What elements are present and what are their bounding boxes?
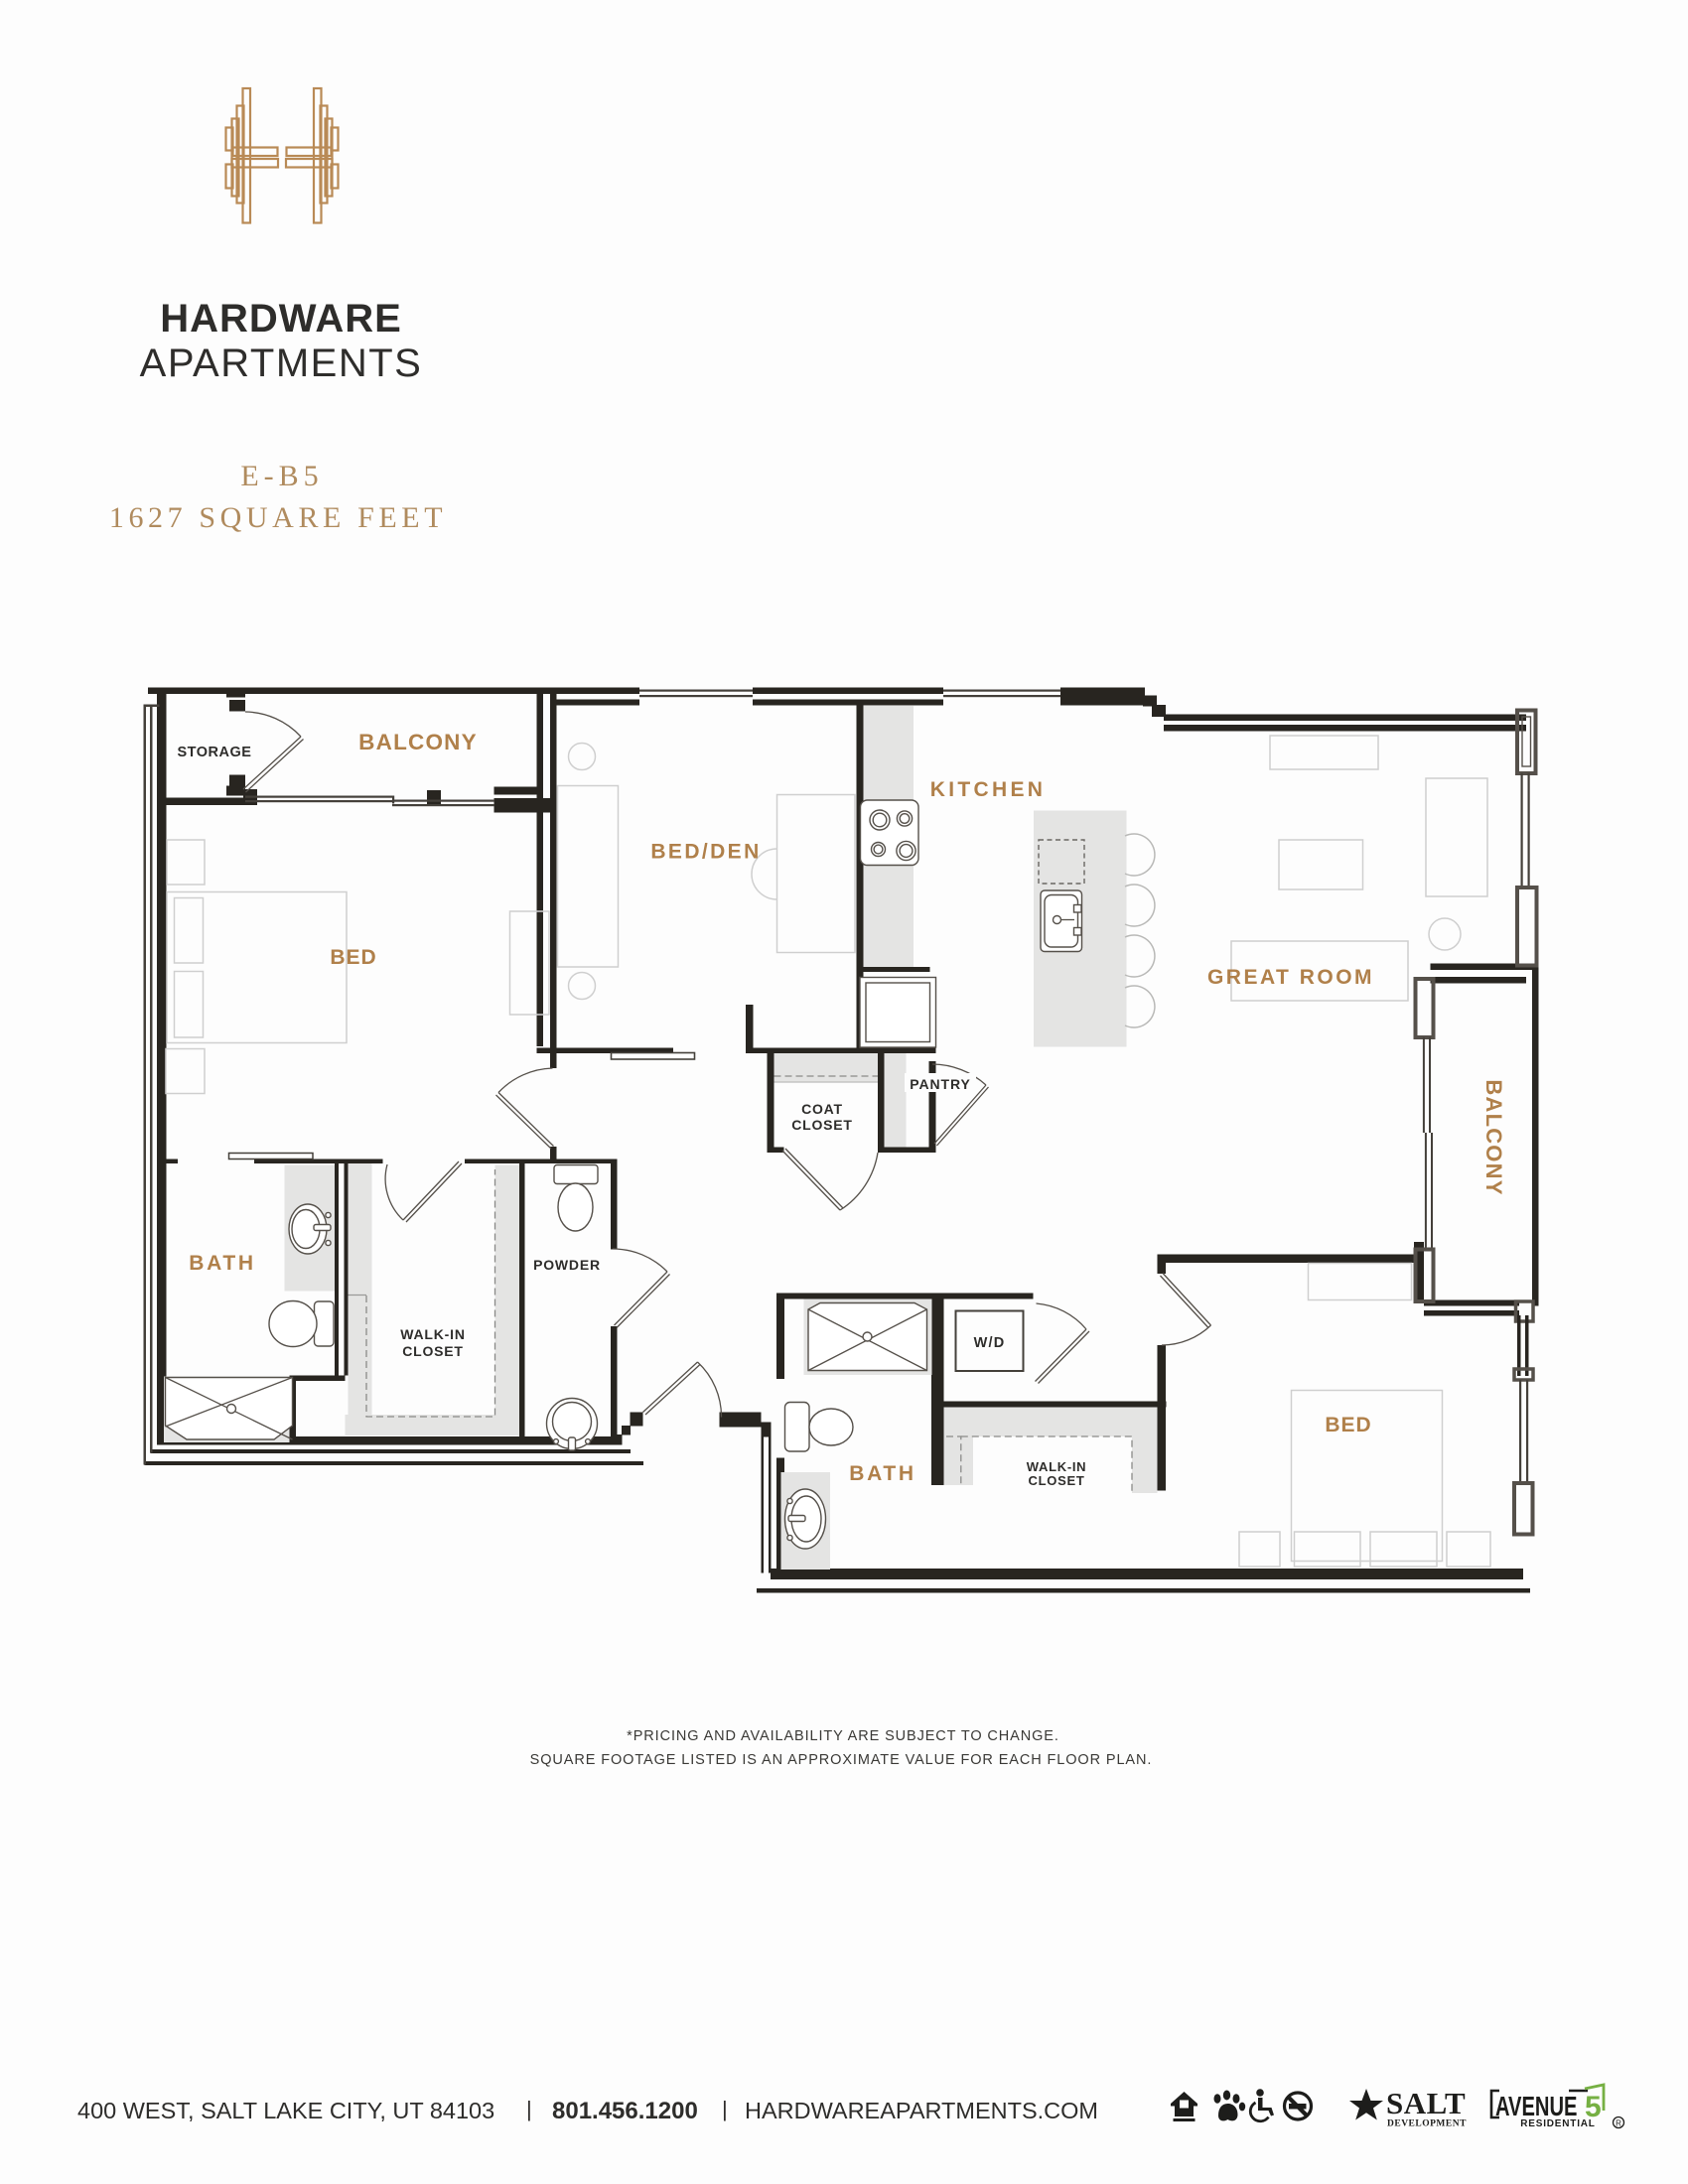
svg-text:CLOSET: CLOSET (791, 1117, 853, 1133)
svg-text:400 WEST, SALT LAKE CITY, UT 8: 400 WEST, SALT LAKE CITY, UT 84103 (77, 2098, 494, 2123)
svg-text:E-B5: E-B5 (240, 460, 323, 492)
svg-text:W/D: W/D (974, 1335, 1006, 1351)
svg-text:DEVELOPMENT: DEVELOPMENT (1387, 2119, 1467, 2129)
svg-text:BED: BED (330, 946, 376, 969)
svg-text:BATH: BATH (849, 1462, 916, 1485)
svg-text:APARTMENTS: APARTMENTS (140, 341, 423, 385)
svg-text:KITCHEN: KITCHEN (930, 778, 1046, 801)
svg-text:HARDWAREAPARTMENTS.COM: HARDWAREAPARTMENTS.COM (745, 2098, 1098, 2123)
svg-text:CLOSET: CLOSET (1029, 1473, 1085, 1488)
svg-text:SALT: SALT (1386, 2086, 1466, 2120)
svg-text:BED/DEN: BED/DEN (650, 841, 761, 864)
svg-text:CLOSET: CLOSET (402, 1343, 464, 1359)
svg-text:STORAGE: STORAGE (178, 745, 252, 760)
svg-text:PANTRY: PANTRY (910, 1076, 970, 1092)
svg-text:POWDER: POWDER (533, 1257, 601, 1273)
svg-text:BALCONY: BALCONY (1481, 1079, 1506, 1195)
svg-text:BED: BED (1325, 1414, 1371, 1436)
svg-text:*PRICING AND AVAILABILITY ARE: *PRICING AND AVAILABILITY ARE SUBJECT TO… (627, 1728, 1059, 1744)
svg-text:HARDWARE: HARDWARE (160, 297, 402, 341)
svg-text:801.456.1200: 801.456.1200 (552, 2098, 698, 2124)
svg-text:1627 SQUARE FEET: 1627 SQUARE FEET (109, 501, 447, 534)
svg-text:WALK-IN: WALK-IN (400, 1326, 465, 1342)
svg-text:|: | (722, 2097, 728, 2121)
svg-text:COAT: COAT (801, 1101, 843, 1117)
svg-text:R: R (1616, 2119, 1621, 2128)
svg-text:GREAT ROOM: GREAT ROOM (1207, 966, 1374, 989)
svg-text:BATH: BATH (189, 1252, 256, 1275)
svg-text:WALK-IN: WALK-IN (1027, 1459, 1087, 1474)
svg-text:BALCONY: BALCONY (358, 730, 478, 754)
svg-text:RESIDENTIAL: RESIDENTIAL (1520, 2118, 1595, 2129)
svg-text:|: | (526, 2097, 532, 2121)
svg-text:SQUARE FOOTAGE LISTED IS AN AP: SQUARE FOOTAGE LISTED IS AN APPROXIMATE … (530, 1752, 1153, 1768)
